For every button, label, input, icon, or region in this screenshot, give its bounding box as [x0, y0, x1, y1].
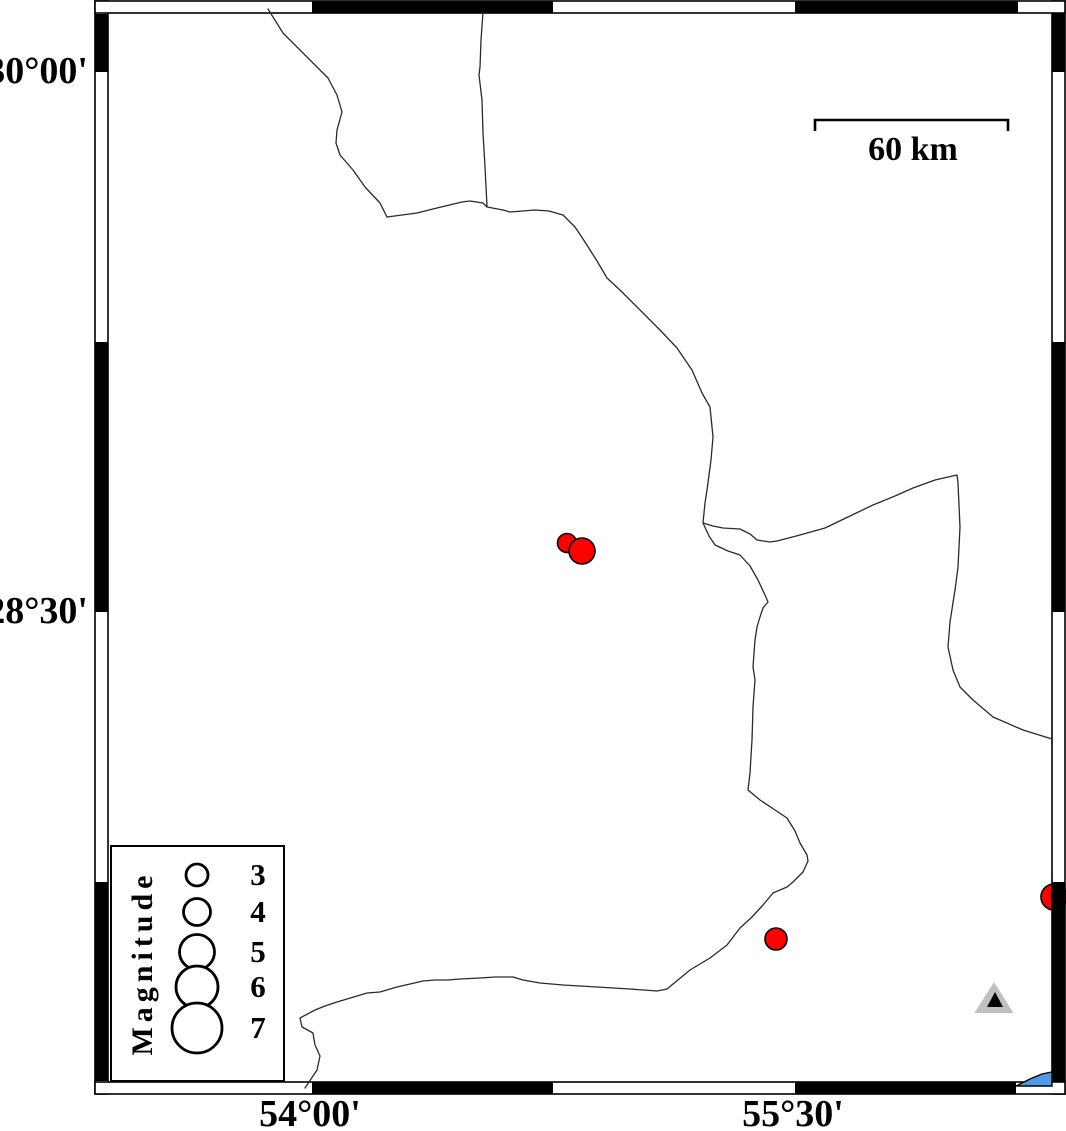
frame-black-segment	[312, 1, 553, 13]
longitude-annotation: 54°00'	[210, 1092, 410, 1131]
frame-black-segment	[1052, 882, 1065, 1082]
boundary-line	[387, 201, 713, 523]
legend-symbol-circle	[180, 935, 215, 970]
seismicity-map: 30°00' 28°30' 54°00' 55°30' 60 km Magnit…	[0, 0, 1066, 1131]
legend-entry-label: 7	[228, 1011, 288, 1045]
legend-symbol-circle	[184, 899, 211, 926]
legend-entry-label: 4	[228, 895, 288, 929]
boundary-line	[479, 12, 487, 206]
legend-symbol-circle	[172, 1003, 222, 1053]
frame-black-segment	[1052, 342, 1065, 612]
frame-black-segment	[95, 342, 108, 612]
scale-bar-label: 60 km	[833, 132, 993, 168]
earthquake-marker	[765, 928, 787, 950]
frame-black-segment	[95, 882, 108, 1081]
water-area	[1016, 1072, 1052, 1086]
earthquake-marker	[569, 538, 595, 564]
legend-entry-label: 3	[228, 858, 288, 892]
legend-entry-label: 6	[228, 970, 288, 1004]
latitude-annotation: 28°30'	[0, 589, 88, 633]
longitude-annotation: 55°30'	[693, 1092, 893, 1131]
boundary-line	[300, 523, 808, 1088]
magnitude-legend: Magnitude 34567	[110, 845, 285, 1082]
legend-symbol-circle	[186, 864, 208, 886]
frame-black-segment	[95, 14, 108, 72]
frame-black-segment	[1052, 13, 1065, 72]
boundary-line	[703, 475, 1052, 739]
legend-entry-label: 5	[228, 935, 288, 969]
latitude-annotation: 30°00'	[0, 49, 88, 93]
frame-black-segment	[795, 1, 1018, 13]
boundary-line	[268, 9, 387, 217]
scale-bar-line	[815, 120, 1008, 131]
